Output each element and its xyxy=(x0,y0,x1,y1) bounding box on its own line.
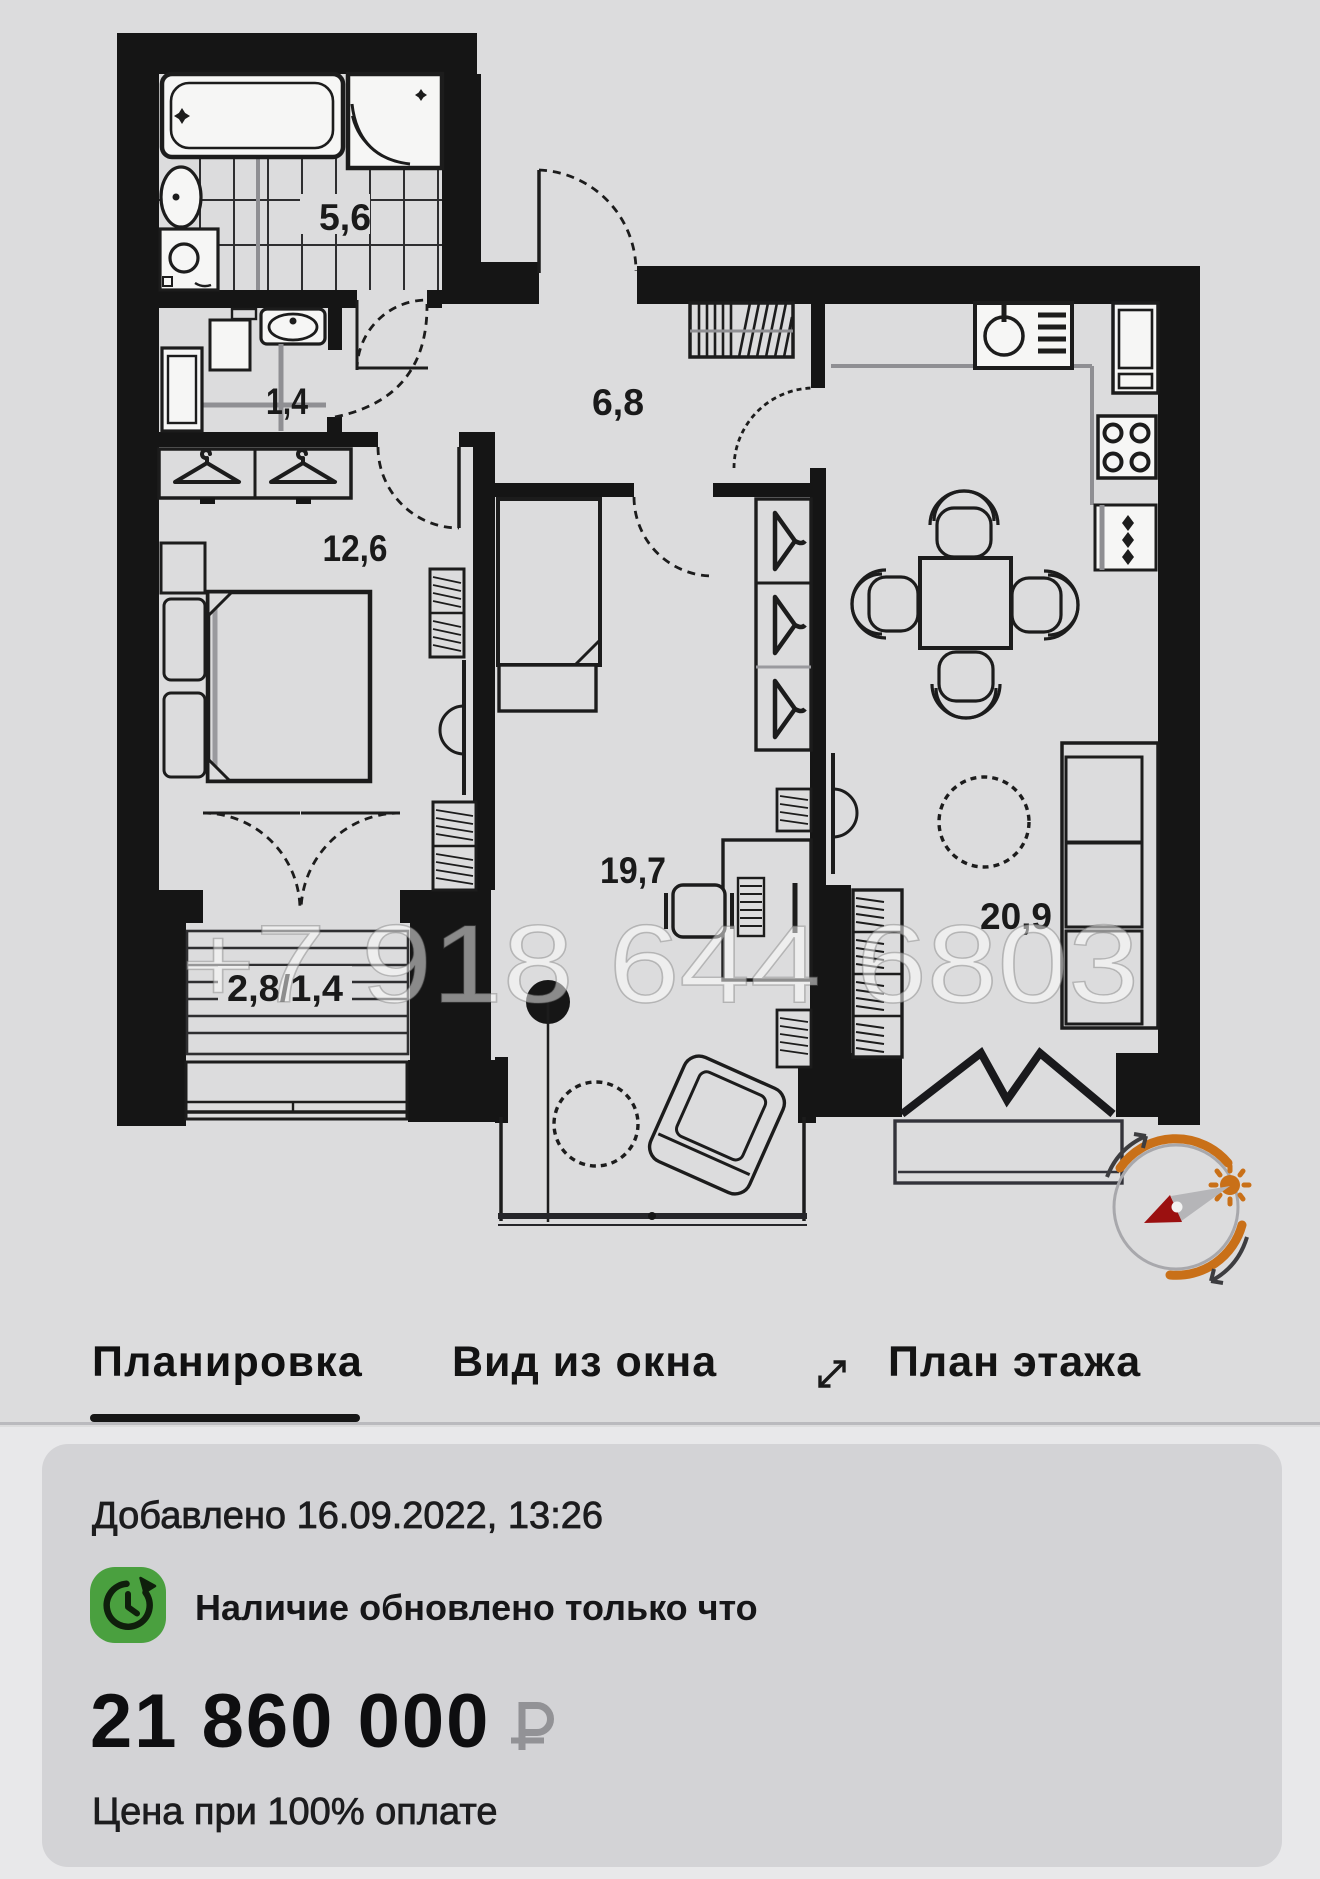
svg-text:1,4: 1,4 xyxy=(266,381,308,422)
svg-text:19,7: 19,7 xyxy=(600,850,666,891)
svg-text:+7 918 644 6803: +7 918 644 6803 xyxy=(181,903,1139,1026)
svg-text:5,6: 5,6 xyxy=(319,197,371,238)
svg-text:6,8: 6,8 xyxy=(592,382,644,423)
svg-text:12,6: 12,6 xyxy=(323,528,388,569)
